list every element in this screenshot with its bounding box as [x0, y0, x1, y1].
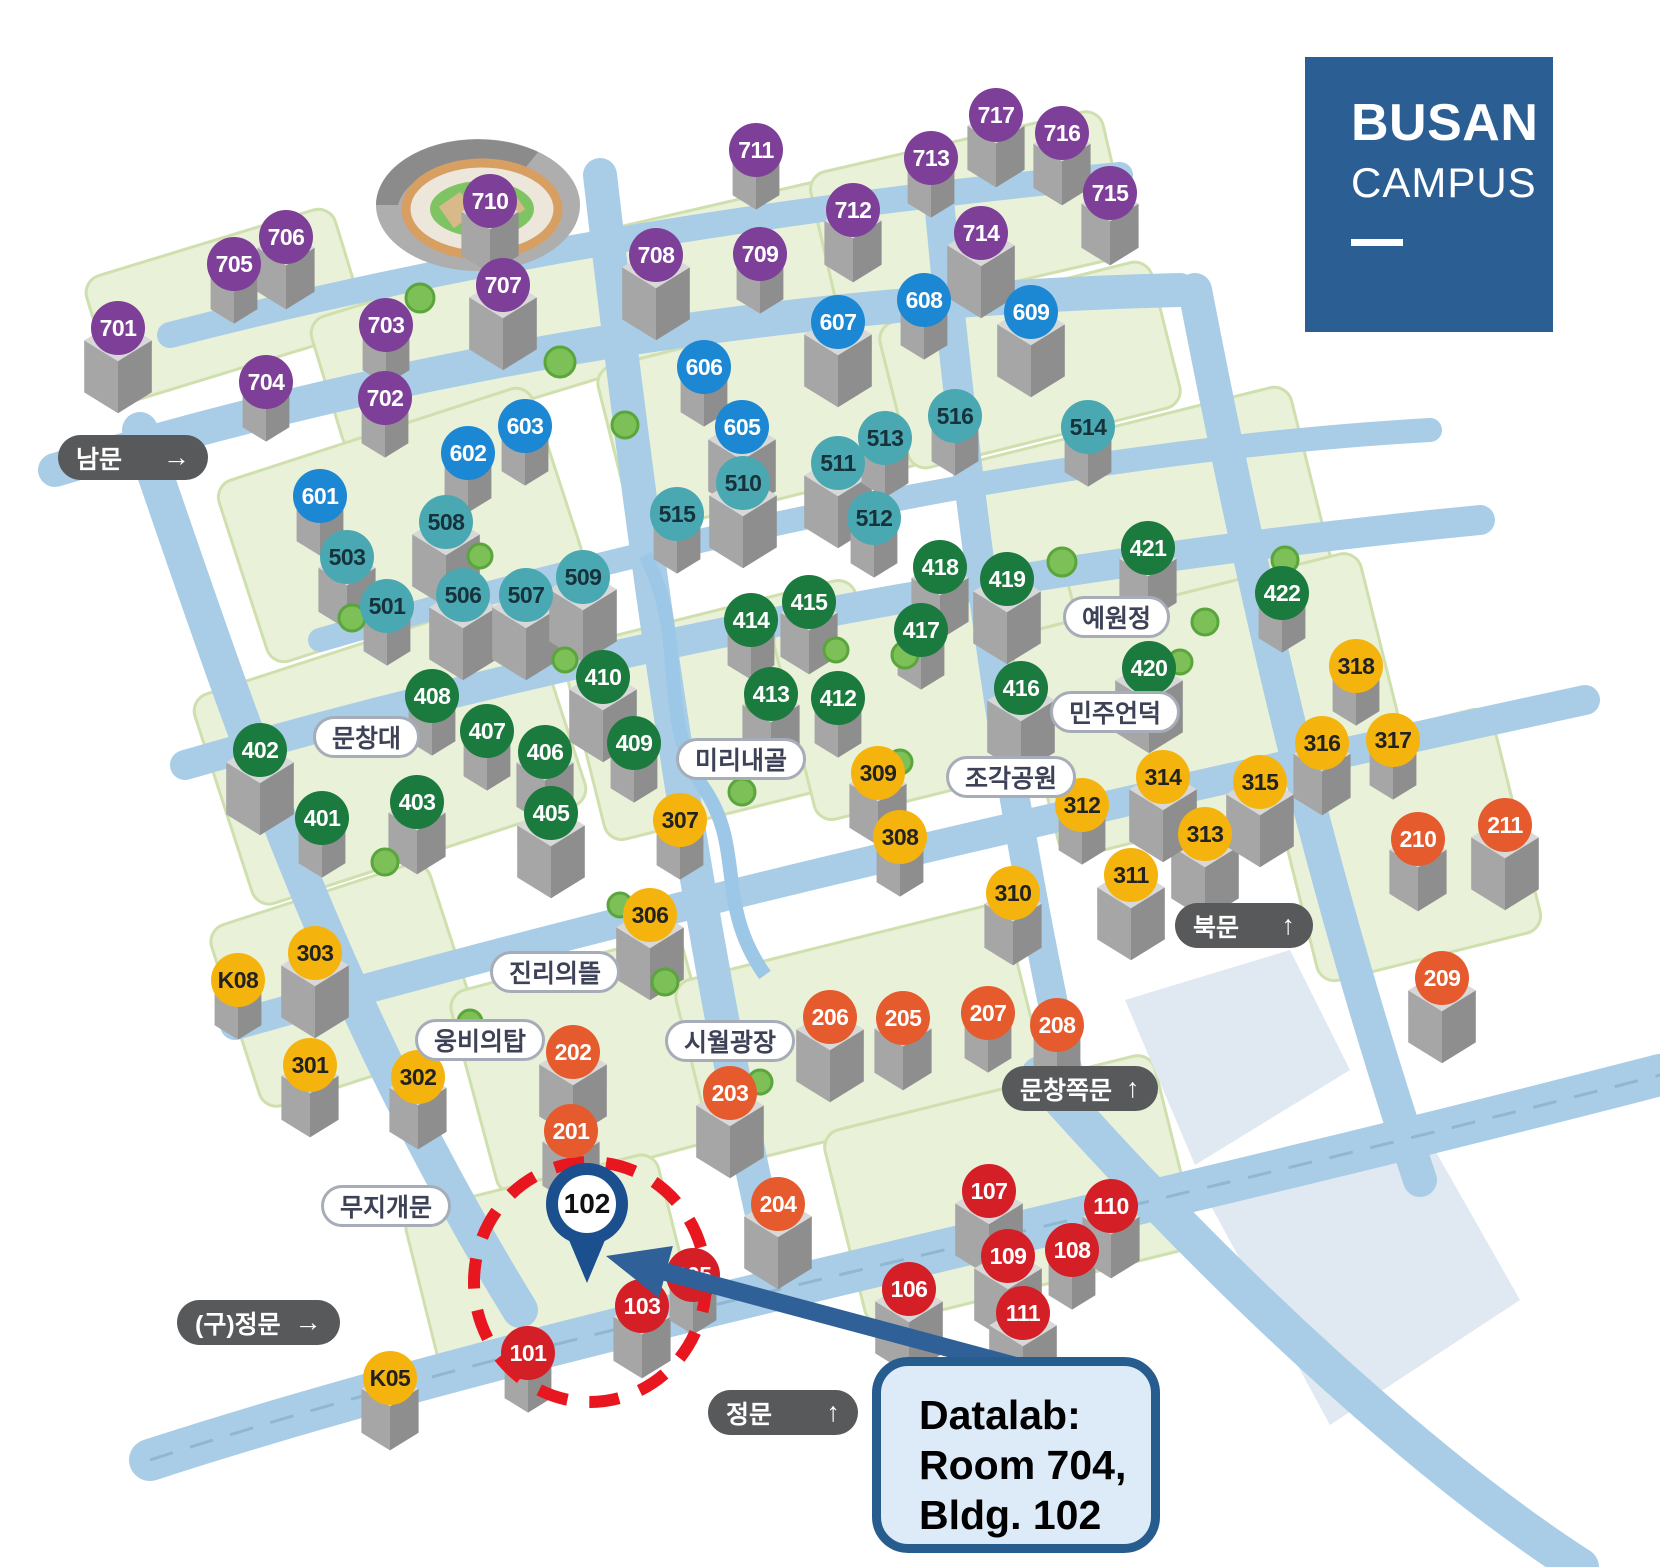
place-label-미리내골: 미리내골 [676, 738, 806, 780]
building-marker-408: 408 [405, 669, 459, 723]
place-label-예원정: 예원정 [1063, 596, 1170, 638]
building-marker-314: 314 [1136, 750, 1190, 804]
building-marker-306: 306 [623, 888, 677, 942]
building-marker-606: 606 [677, 340, 731, 394]
building-marker-716: 716 [1035, 106, 1089, 160]
building-marker-110: 110 [1084, 1179, 1138, 1233]
building-marker-420: 420 [1122, 641, 1176, 695]
gate-name: (구)정문 [195, 1305, 281, 1341]
building-marker-315: 315 [1233, 755, 1287, 809]
building-marker-419: 419 [980, 552, 1034, 606]
building-marker-107: 107 [962, 1164, 1016, 1218]
building-marker-511: 511 [811, 436, 865, 490]
place-label-시월광장: 시월광장 [665, 1020, 795, 1062]
building-marker-109: 109 [981, 1229, 1035, 1283]
building-marker-417: 417 [894, 603, 948, 657]
building-marker-105: 105 [666, 1248, 720, 1302]
building-marker-405: 405 [524, 786, 578, 840]
building-marker-603: 603 [498, 399, 552, 453]
building-marker-609: 609 [1004, 285, 1058, 339]
building-marker-607: 607 [811, 295, 865, 349]
building-marker-201: 201 [544, 1104, 598, 1158]
building-marker-206: 206 [803, 990, 857, 1044]
gate-name: 북문 [1193, 908, 1239, 944]
building-marker-101: 101 [501, 1326, 555, 1380]
building-marker-409: 409 [607, 716, 661, 770]
building-marker-310: 310 [986, 866, 1040, 920]
gate-direction-arrow-icon: ↑ [1282, 910, 1296, 941]
pin-head: 102 [546, 1163, 628, 1245]
place-label-민주언덕: 민주언덕 [1050, 691, 1180, 733]
building-marker-301: 301 [283, 1038, 337, 1092]
callout-line-2: Room 704, [919, 1440, 1151, 1490]
gate-label-정문: 정문↑ [708, 1390, 858, 1435]
building-marker-509: 509 [556, 550, 610, 604]
callout-line-3: Bldg. 102 [919, 1490, 1151, 1540]
building-marker-702: 702 [358, 371, 412, 425]
place-label-진리의뜰: 진리의뜰 [490, 951, 620, 993]
gate-direction-arrow-icon: → [295, 1307, 322, 1338]
building-marker-202: 202 [546, 1025, 600, 1079]
building-marker-503: 503 [320, 530, 374, 584]
building-marker-715: 715 [1083, 166, 1137, 220]
building-marker-317: 317 [1366, 713, 1420, 767]
building-marker-414: 414 [724, 593, 778, 647]
gate-label-남문: 남문→ [58, 435, 208, 480]
gate-label-문창쪽문: 문창쪽문↑ [1002, 1066, 1158, 1111]
building-marker-713: 713 [904, 131, 958, 185]
campus-map-page: 7017027037047057067077087097107117127137… [0, 0, 1660, 1567]
datalab-callout: Datalab: Room 704, Bldg. 102 [872, 1357, 1160, 1553]
building-marker-307: 307 [653, 793, 707, 847]
building-marker-402: 402 [233, 723, 287, 777]
building-marker-204: 204 [751, 1177, 805, 1231]
building-marker-601: 601 [293, 469, 347, 523]
gate-direction-arrow-icon: → [163, 442, 190, 473]
building-marker-203: 203 [703, 1066, 757, 1120]
logo-subtitle: CAMPUS [1351, 159, 1553, 207]
building-marker-309: 309 [851, 746, 905, 800]
building-marker-211: 211 [1478, 798, 1532, 852]
building-marker-512: 512 [847, 491, 901, 545]
building-marker-413: 413 [744, 667, 798, 721]
building-marker-711: 711 [729, 123, 783, 177]
gate-label-북문: 북문↑ [1175, 903, 1313, 948]
building-marker-516: 516 [928, 389, 982, 443]
building-marker-714: 714 [954, 206, 1008, 260]
logo-underline [1351, 239, 1403, 246]
building-marker-705: 705 [207, 237, 261, 291]
building-marker-308: 308 [873, 810, 927, 864]
building-marker-318: 318 [1329, 639, 1383, 693]
building-marker-717: 717 [969, 88, 1023, 142]
building-marker-418: 418 [913, 540, 967, 594]
building-marker-706: 706 [259, 210, 313, 264]
building-marker-707: 707 [476, 258, 530, 312]
building-marker-703: 703 [359, 298, 413, 352]
building-marker-710: 710 [463, 174, 517, 228]
building-marker-508: 508 [419, 495, 473, 549]
building-marker-709: 709 [733, 227, 787, 281]
location-pin-bldg-102: 102 [546, 1163, 628, 1245]
building-marker-401: 401 [295, 791, 349, 845]
building-marker-515: 515 [650, 487, 704, 541]
building-marker-K08: K08 [211, 953, 265, 1007]
building-marker-106: 106 [882, 1262, 936, 1316]
building-marker-602: 602 [441, 426, 495, 480]
pin-label: 102 [564, 1188, 611, 1220]
building-marker-406: 406 [518, 725, 572, 779]
building-marker-514: 514 [1061, 400, 1115, 454]
building-marker-403: 403 [390, 775, 444, 829]
building-marker-704: 704 [239, 355, 293, 409]
building-marker-608: 608 [897, 273, 951, 327]
place-label-조각공원: 조각공원 [946, 756, 1076, 798]
building-marker-507: 507 [499, 568, 553, 622]
building-marker-303: 303 [288, 926, 342, 980]
building-marker-422: 422 [1255, 566, 1309, 620]
building-marker-209: 209 [1415, 951, 1469, 1005]
logo-title: BUSAN [1351, 93, 1553, 153]
building-marker-501: 501 [360, 579, 414, 633]
gate-name: 남문 [76, 440, 122, 476]
building-marker-108: 108 [1045, 1223, 1099, 1277]
building-marker-316: 316 [1295, 716, 1349, 770]
building-marker-205: 205 [876, 991, 930, 1045]
building-marker-421: 421 [1121, 521, 1175, 575]
building-marker-K05: K05 [363, 1351, 417, 1405]
building-marker-103: 103 [615, 1279, 669, 1333]
building-marker-208: 208 [1030, 998, 1084, 1052]
building-marker-313: 313 [1178, 807, 1232, 861]
callout-line-1: Datalab: [919, 1390, 1151, 1440]
building-marker-210: 210 [1391, 812, 1445, 866]
place-label-웅비의탑: 웅비의탑 [415, 1019, 545, 1061]
busan-campus-logo: BUSAN CAMPUS [1305, 57, 1553, 332]
gate-direction-arrow-icon: ↑ [827, 1397, 841, 1428]
building-marker-416: 416 [994, 661, 1048, 715]
building-marker-207: 207 [961, 986, 1015, 1040]
building-marker-412: 412 [811, 671, 865, 725]
gate-name: 문창쪽문 [1020, 1071, 1112, 1107]
building-marker-712: 712 [826, 183, 880, 237]
building-marker-510: 510 [716, 456, 770, 510]
gate-name: 정문 [726, 1395, 772, 1431]
building-marker-410: 410 [576, 650, 630, 704]
gate-label-(구)정문: (구)정문→ [177, 1300, 340, 1345]
building-marker-513: 513 [858, 411, 912, 465]
gate-direction-arrow-icon: ↑ [1126, 1073, 1140, 1104]
building-marker-111: 111 [996, 1286, 1050, 1340]
building-marker-701: 701 [91, 301, 145, 355]
place-label-문창대: 문창대 [313, 716, 420, 758]
building-marker-708: 708 [629, 228, 683, 282]
building-marker-415: 415 [782, 575, 836, 629]
place-label-무지개문: 무지개문 [321, 1185, 451, 1227]
building-marker-407: 407 [460, 704, 514, 758]
building-marker-311: 311 [1104, 848, 1158, 902]
building-marker-506: 506 [436, 568, 490, 622]
building-marker-605: 605 [715, 400, 769, 454]
